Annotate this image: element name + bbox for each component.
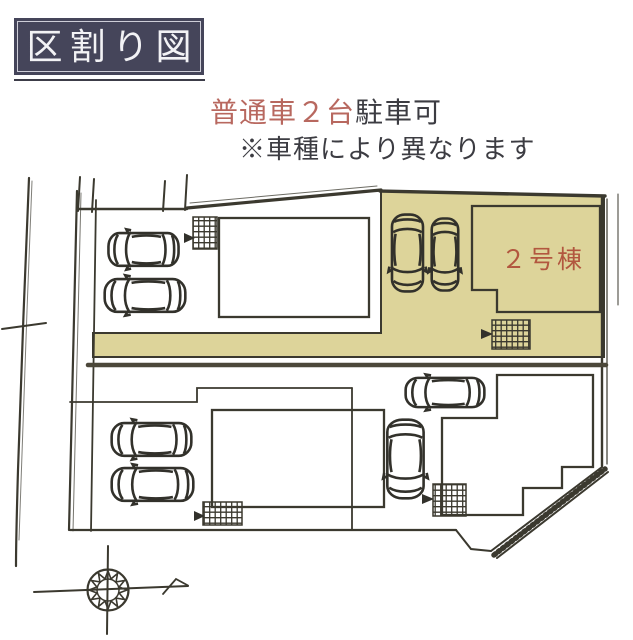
car-icon: [105, 275, 186, 315]
compass-icon: [34, 546, 188, 634]
boundary-stake: [185, 175, 187, 210]
page: 区割り図 普通車２台駐車可 ※車種により異なります: [0, 0, 633, 640]
hatch-pad-icon: [433, 484, 466, 516]
bottom-boundary-step: [456, 530, 491, 551]
road-edge-line: [16, 178, 29, 566]
car-icon: [383, 420, 428, 499]
pad-arrow-icon: [422, 494, 434, 504]
lot-2-label: ２号棟: [501, 246, 585, 274]
boundary-stake: [163, 181, 165, 211]
hatch-pad-icon: [193, 217, 217, 249]
car-icon: [406, 375, 485, 411]
lot-left-boundary-echo: [73, 193, 81, 531]
car-icon: [112, 419, 192, 459]
plot-map: ２号棟: [0, 0, 633, 640]
lot3-top-boundary: [70, 388, 352, 402]
building-3-outline: [212, 410, 384, 507]
hatch-pad-icon: [203, 502, 242, 525]
lot-left-boundary: [69, 191, 77, 530]
slope-hatch: [491, 467, 608, 558]
car-icon: [112, 464, 194, 504]
building-1-outline: [219, 218, 369, 317]
car-icon: [108, 229, 178, 269]
top-boundary-diagonal: [187, 190, 381, 208]
boundary-stake: [92, 179, 94, 212]
hatch-pad-icon: [492, 320, 530, 349]
boundary-stake: [78, 177, 80, 211]
